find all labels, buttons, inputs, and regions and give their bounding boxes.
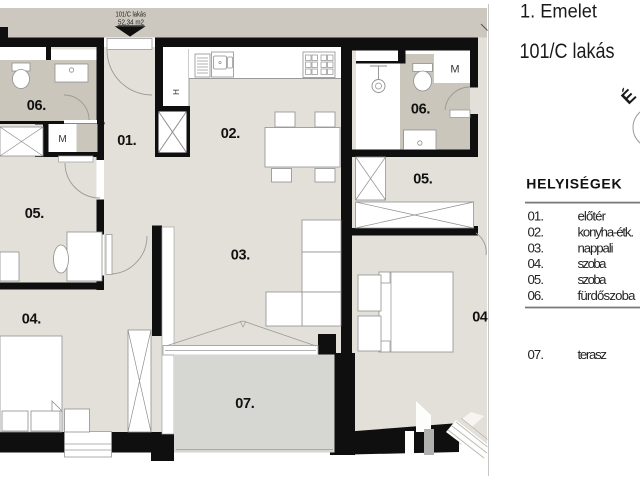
svg-text:04.: 04. [22,312,42,328]
svg-text:M: M [58,134,66,145]
svg-text:É: É [617,85,640,108]
svg-text:konyha-étk.: konyha-étk. [578,224,635,239]
svg-text:04.: 04. [528,256,545,271]
svg-text:03.: 03. [231,248,251,264]
svg-text:02.: 02. [221,126,241,142]
svg-text:101/C lakás: 101/C lakás [116,12,147,19]
svg-text:szoba: szoba [578,272,608,287]
svg-text:05.: 05. [413,171,433,187]
svg-text:07.: 07. [235,396,255,412]
svg-text:HELYISÉGEK: HELYISÉGEK [526,176,622,192]
svg-text:01.: 01. [528,209,545,224]
svg-text:02.: 02. [528,224,545,239]
svg-text:nappali: nappali [578,240,614,255]
svg-text:M: M [450,64,459,76]
svg-text:H: H [172,89,181,95]
svg-text:03.: 03. [528,240,545,255]
svg-text:01.: 01. [117,133,137,149]
svg-text:előtér: előtér [578,209,607,224]
svg-text:06.: 06. [411,102,431,118]
svg-text:06.: 06. [528,288,545,303]
svg-text:07.: 07. [528,347,545,362]
svg-text:101/C lakás: 101/C lakás [520,40,615,63]
svg-text:05.: 05. [25,206,45,222]
svg-text:06.: 06. [27,98,47,114]
svg-text:fürdőszoba: fürdőszoba [578,288,637,303]
svg-text:05.: 05. [528,272,545,287]
svg-text:terasz: terasz [578,347,608,362]
svg-text:1. Emelet: 1. Emelet [520,1,598,23]
svg-text:szoba: szoba [578,256,608,271]
